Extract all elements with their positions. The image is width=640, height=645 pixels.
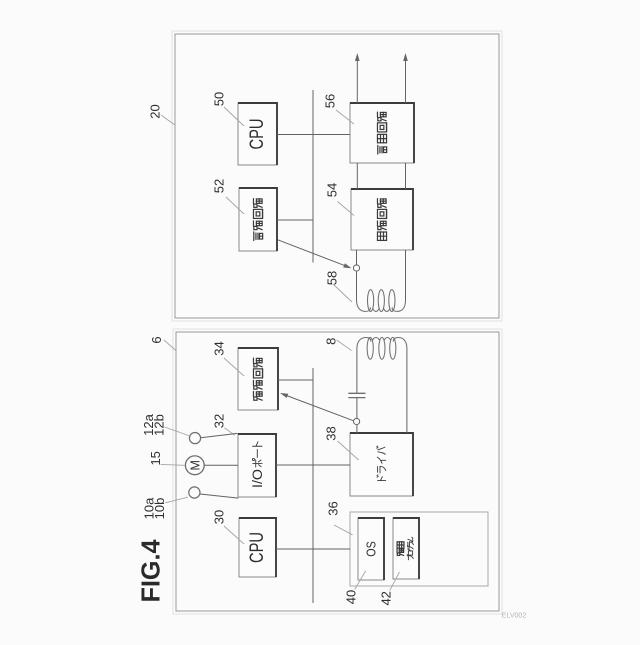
- svg-text:10b: 10b: [152, 498, 167, 520]
- svg-text:CPU: CPU: [247, 532, 268, 563]
- svg-text:CPU: CPU: [247, 119, 268, 150]
- svg-text:38: 38: [324, 426, 339, 440]
- svg-text:OS: OS: [365, 541, 379, 557]
- svg-text:20: 20: [148, 104, 163, 118]
- svg-text:54: 54: [325, 183, 340, 197]
- svg-text:50: 50: [212, 92, 227, 106]
- svg-text:I/O: I/O: [250, 469, 265, 488]
- svg-text:6: 6: [149, 336, 164, 343]
- svg-text:58: 58: [325, 271, 340, 285]
- svg-text:34: 34: [212, 341, 227, 355]
- svg-text:15: 15: [148, 451, 163, 465]
- svg-text:M: M: [188, 460, 202, 470]
- svg-text:FIG.4: FIG.4: [136, 539, 166, 603]
- svg-text:8: 8: [324, 338, 339, 345]
- svg-text:52: 52: [212, 179, 227, 193]
- svg-text:42: 42: [379, 591, 394, 605]
- svg-text:56: 56: [323, 94, 338, 108]
- svg-text:12b: 12b: [152, 414, 167, 436]
- svg-text:ELV002: ELV002: [502, 611, 527, 620]
- svg-text:30: 30: [212, 510, 227, 524]
- svg-text:40: 40: [344, 590, 359, 604]
- svg-text:32: 32: [212, 414, 227, 428]
- svg-text:36: 36: [326, 501, 341, 515]
